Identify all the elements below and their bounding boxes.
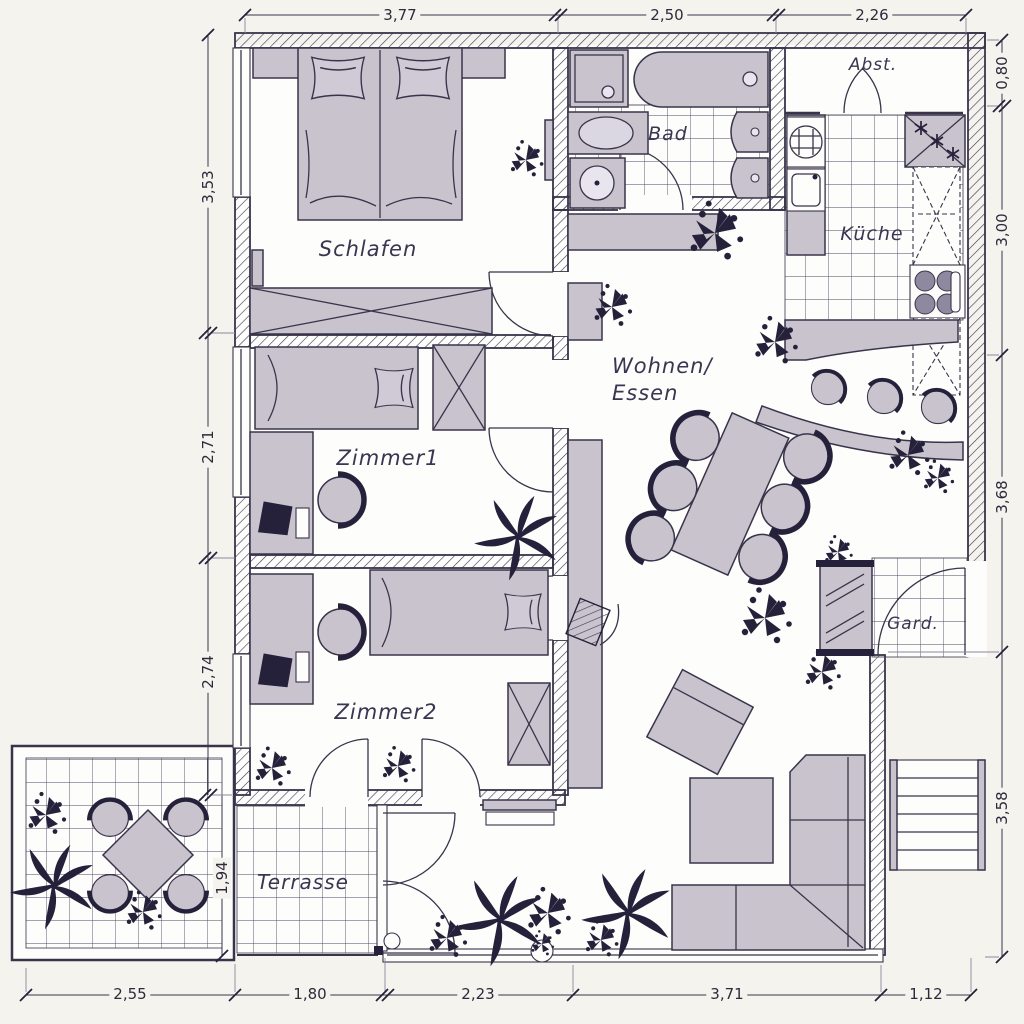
floor-plan-page: Schlafen Zimmer1 Zimmer2 Bad Küche Abst.…: [0, 0, 1024, 1024]
room-label-wohnen-line2: Essen: [612, 380, 713, 407]
dim-bottom-2: 2,23: [457, 985, 498, 1003]
dim-bottom-3: 3,71: [706, 985, 747, 1003]
terrace-door-wall: [377, 805, 387, 951]
coffee-table: [690, 778, 773, 863]
dim-right-1: 3,00: [993, 209, 1011, 250]
dim-top-0: 3,77: [379, 6, 420, 24]
dim-bottom-4: 1,12: [905, 985, 946, 1003]
dim-left-1: 2,71: [199, 426, 217, 467]
dim-right-3: 3,58: [993, 787, 1011, 828]
bidet: [731, 158, 768, 198]
dim-right-2: 3,68: [993, 476, 1011, 517]
room-label-kueche: Küche: [840, 223, 903, 245]
plant-shelf: [568, 283, 602, 340]
dim-bottom-0: 2,55: [109, 985, 150, 1003]
dim-left-2: 2,74: [199, 651, 217, 692]
room-label-wohnen-line1: Wohnen/: [612, 353, 713, 380]
shelf: [486, 812, 554, 825]
dim-right-0: 0,80: [993, 52, 1011, 93]
room-label-terrasse: Terrasse: [257, 870, 349, 894]
wc: [731, 112, 768, 152]
sill-board: [483, 800, 556, 810]
kitchen-sink: [787, 169, 825, 211]
dim-left-3: 1,94: [213, 857, 231, 898]
entry-wardrobe: [820, 565, 872, 650]
room-label-schlafen: Schlafen: [319, 237, 418, 261]
dim-top-1: 2,50: [646, 6, 687, 24]
room-label-zimmer2: Zimmer2: [334, 700, 437, 724]
hob: [787, 117, 825, 167]
room-label-garderobe: Gard.: [887, 614, 939, 634]
dim-left-0: 3,53: [199, 166, 217, 207]
room-label-bad: Bad: [648, 123, 688, 145]
washbasin: [579, 117, 633, 149]
dim-bottom-1: 1,80: [289, 985, 330, 1003]
keyboard: [296, 508, 309, 538]
room-label-abstellraum: Abst.: [849, 55, 897, 75]
keyboard: [296, 652, 309, 682]
dim-top-2: 2,26: [851, 6, 892, 24]
radiator: [252, 250, 263, 286]
room-label-zimmer1: Zimmer1: [336, 446, 439, 470]
room-label-wohnen-essen: Wohnen/ Essen: [612, 353, 713, 407]
pergola: [890, 760, 985, 870]
entry-tiles: [872, 558, 968, 657]
sideboard-low: [568, 214, 718, 250]
shower: [570, 50, 628, 107]
floor-plan-drawing: [0, 0, 1024, 1024]
